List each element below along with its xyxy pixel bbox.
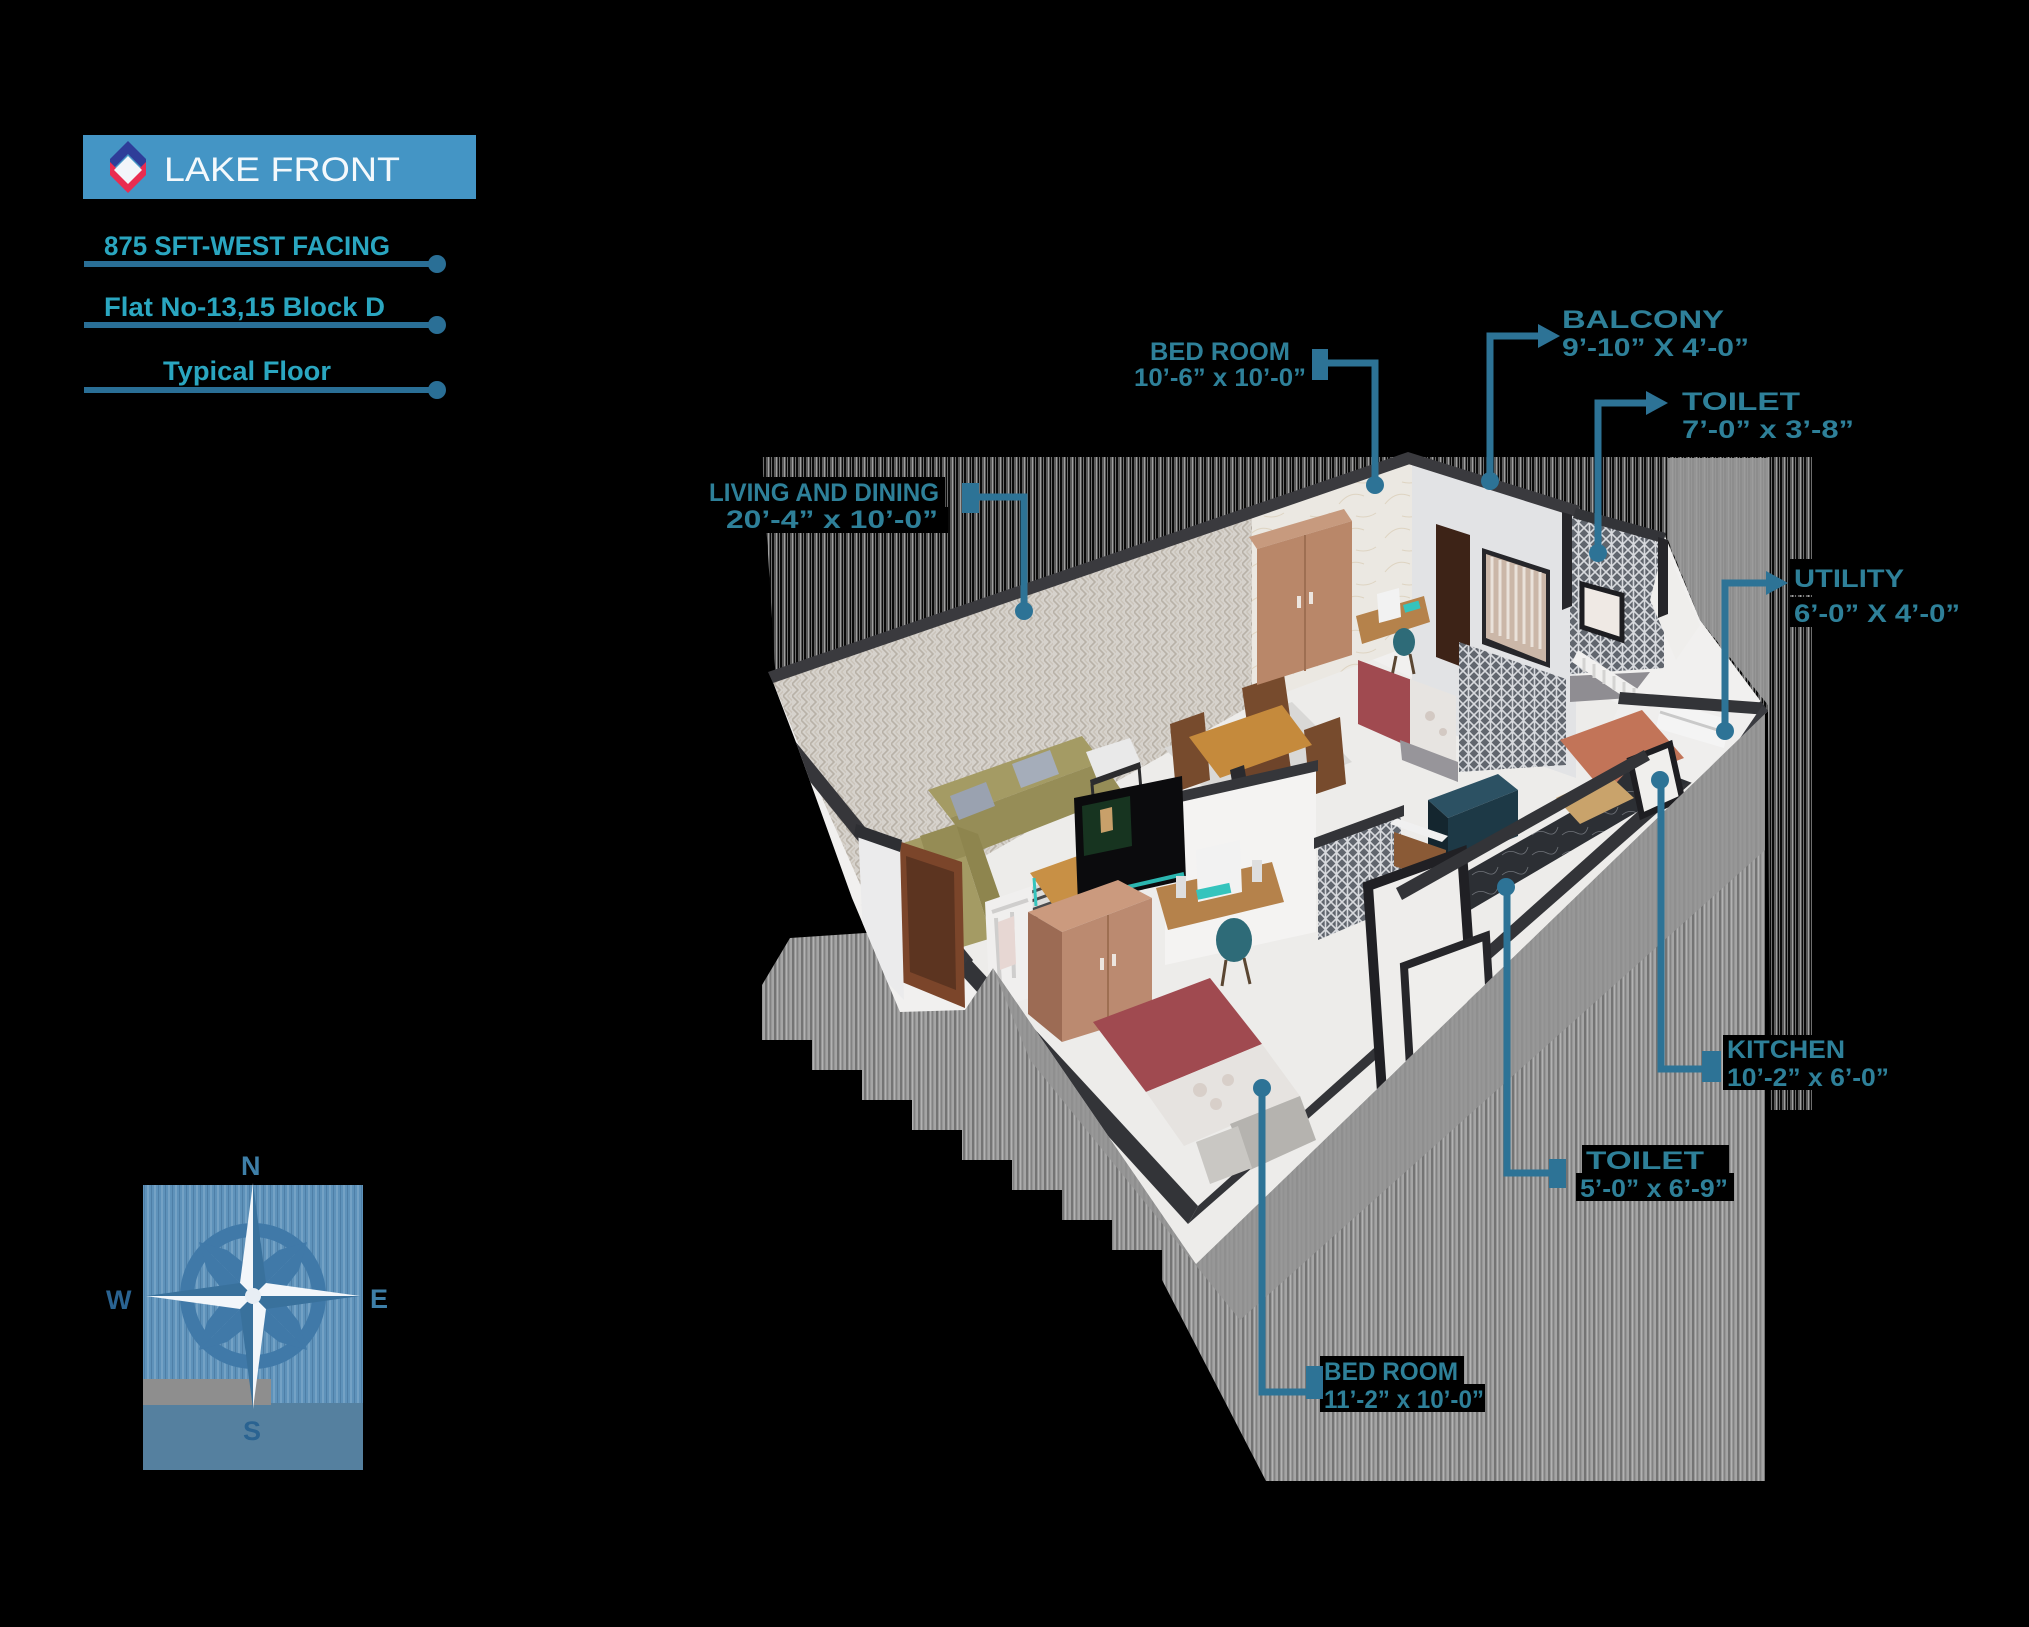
svg-text:TOILET: TOILET: [1586, 1147, 1704, 1175]
svg-text:W: W: [106, 1285, 132, 1315]
svg-text:UTILITY: UTILITY: [1794, 565, 1904, 593]
svg-text:E: E: [370, 1284, 388, 1314]
svg-text:10’-2” x 6’-0”: 10’-2” x 6’-0”: [1727, 1064, 1889, 1092]
svg-text:BED ROOM: BED ROOM: [1150, 338, 1290, 366]
svg-text:BALCONY: BALCONY: [1562, 306, 1724, 334]
svg-text:KITCHEN: KITCHEN: [1727, 1036, 1845, 1064]
svg-text:LIVING AND DINING: LIVING AND DINING: [709, 479, 939, 507]
svg-text:11’-2” x 10’-0”: 11’-2” x 10’-0”: [1324, 1386, 1484, 1414]
svg-text:9’-10” X 4’-0”: 9’-10” X 4’-0”: [1562, 334, 1749, 362]
svg-text:Typical Floor: Typical Floor: [163, 356, 331, 386]
svg-text:Flat No-13,15 Block D: Flat No-13,15 Block D: [104, 292, 385, 322]
svg-text:6’-0” X 4’-0”: 6’-0” X 4’-0”: [1794, 600, 1960, 628]
svg-text:N: N: [241, 1151, 261, 1181]
svg-text:TOILET: TOILET: [1682, 388, 1800, 416]
svg-text:S: S: [243, 1416, 261, 1446]
svg-text:10’-6” x 10’-0”: 10’-6” x 10’-0”: [1134, 364, 1306, 392]
svg-text:5’-0” x 6’-9”: 5’-0” x 6’-9”: [1580, 1175, 1728, 1203]
svg-text:LAKE FRONT: LAKE FRONT: [164, 151, 400, 189]
svg-text:BED ROOM: BED ROOM: [1324, 1358, 1458, 1386]
svg-text:20’-4” x 10’-0”: 20’-4” x 10’-0”: [726, 506, 938, 534]
svg-text:7’-0” x 3’-8”: 7’-0” x 3’-8”: [1682, 416, 1854, 444]
svg-text:875 SFT-WEST FACING: 875 SFT-WEST FACING: [104, 231, 390, 261]
